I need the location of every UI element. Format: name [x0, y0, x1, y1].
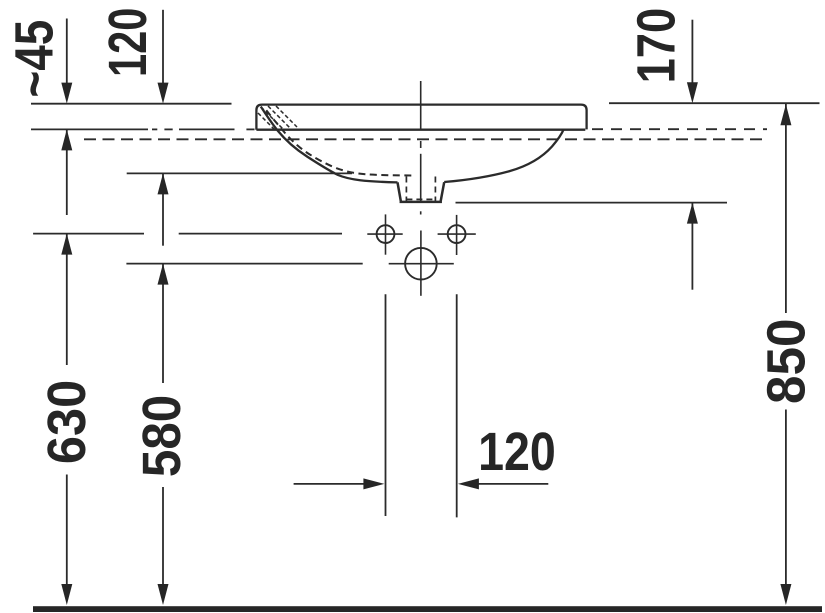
svg-text:630: 630 — [37, 380, 97, 464]
svg-text:580: 580 — [132, 395, 192, 477]
svg-text:120: 120 — [98, 8, 158, 77]
svg-text:850: 850 — [757, 319, 817, 405]
svg-text:120: 120 — [478, 422, 556, 482]
svg-text:170: 170 — [626, 8, 686, 84]
svg-text:~45: ~45 — [5, 20, 65, 98]
